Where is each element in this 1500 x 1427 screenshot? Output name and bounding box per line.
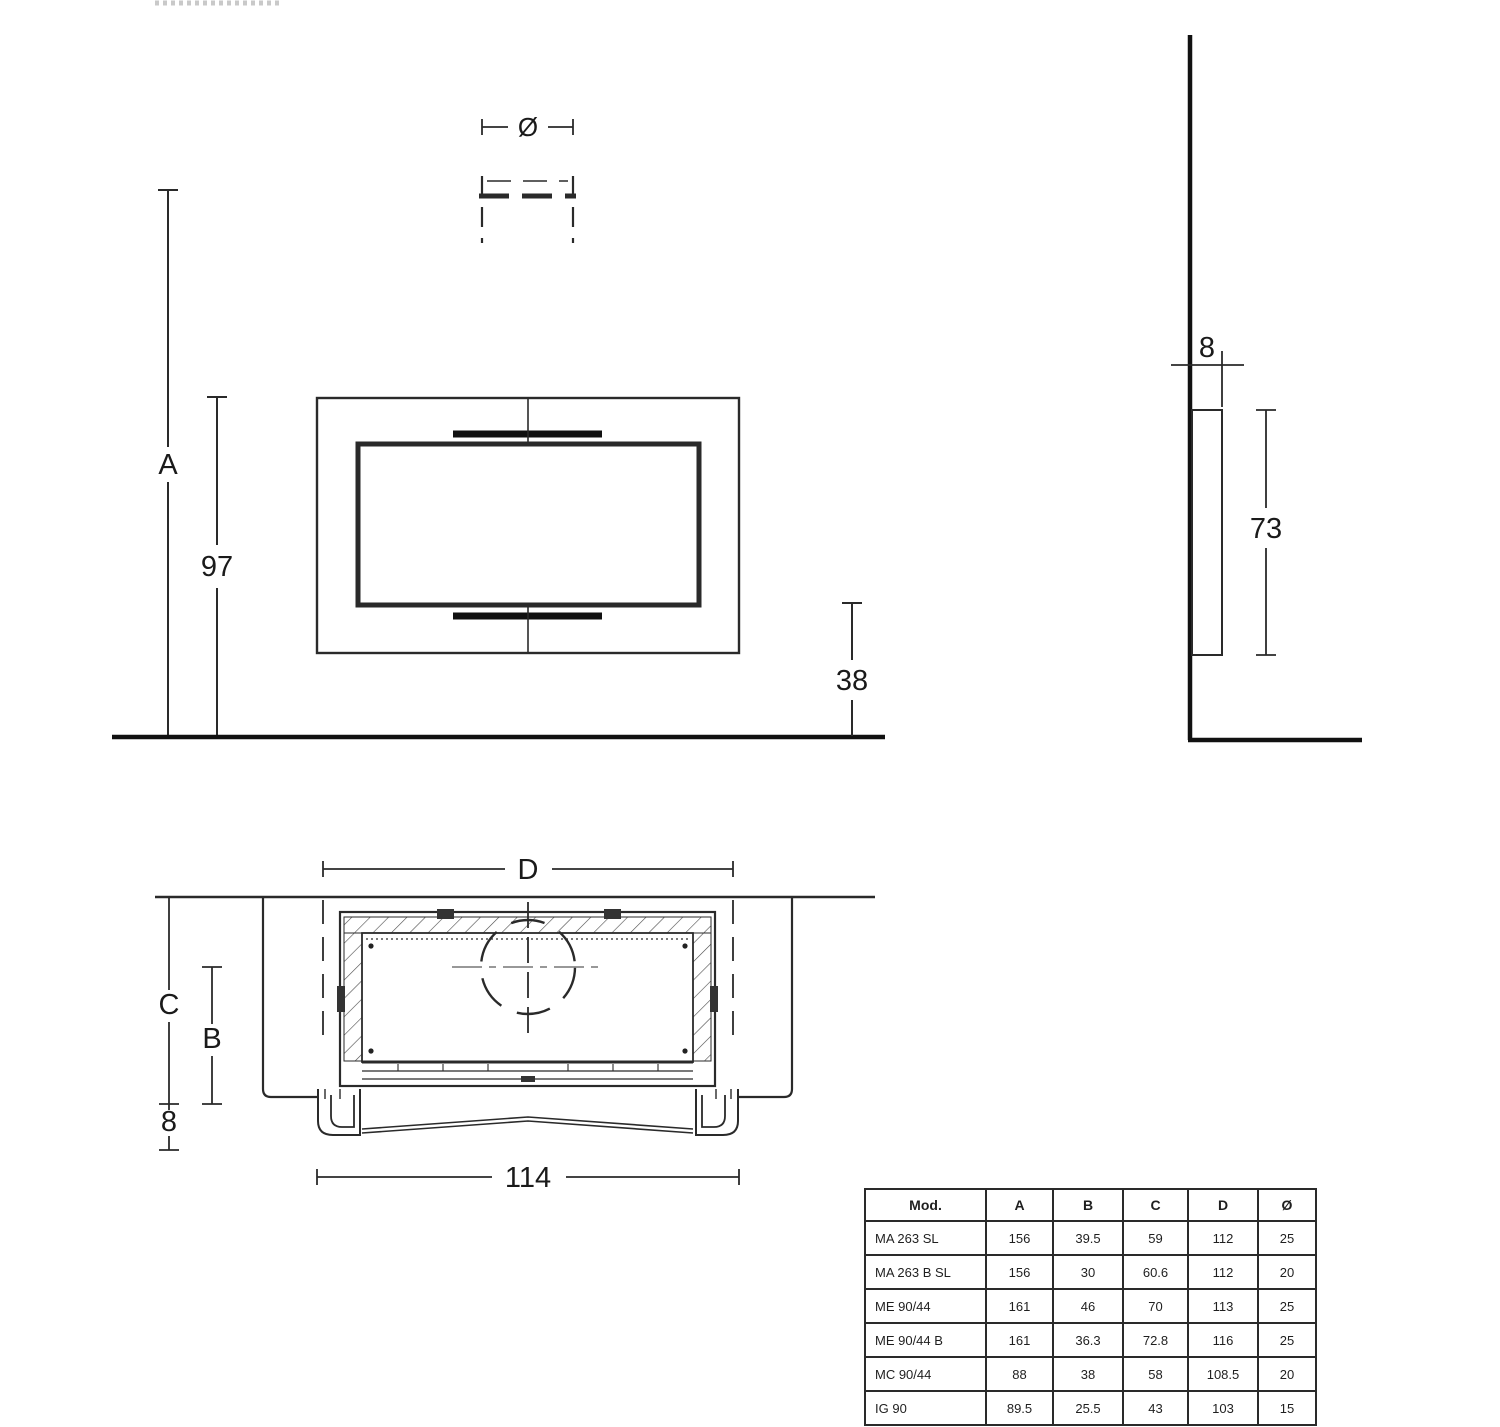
clip-top-left: [437, 909, 454, 919]
bracket-right: [696, 1089, 738, 1135]
dim-8-plan-label: 8: [161, 1106, 177, 1138]
cell-model: IG 90: [865, 1391, 986, 1425]
cell-c: 72.8: [1123, 1323, 1188, 1357]
plan-insulation-left: [344, 933, 362, 1061]
cell-b: 30: [1053, 1255, 1123, 1289]
cell-a: 161: [986, 1323, 1053, 1357]
dim-flue-diameter: Ø: [482, 112, 573, 142]
dim-73-label: 73: [1250, 513, 1282, 545]
cell-b: 46: [1053, 1289, 1123, 1323]
cell-d: 112: [1188, 1221, 1258, 1255]
cell-d: 116: [1188, 1323, 1258, 1357]
screw-dot: [368, 943, 373, 948]
dim-97: 97: [201, 397, 233, 736]
header-d: D: [1188, 1189, 1258, 1221]
dim-b-label: B: [202, 1023, 221, 1055]
header-diameter: Ø: [1258, 1189, 1316, 1221]
cell-model: MA 263 B SL: [865, 1255, 986, 1289]
cell-c: 70: [1123, 1289, 1188, 1323]
front-curve-inner: [362, 1121, 693, 1133]
recess-left-wall: [263, 898, 318, 1097]
cell-d: 113: [1188, 1289, 1258, 1323]
header-c: C: [1123, 1189, 1188, 1221]
clip-side-right: [710, 986, 718, 1012]
dim-depth-c: C: [159, 897, 180, 1104]
screw-dot: [368, 1048, 373, 1053]
dim-niche-width-d: D: [323, 854, 733, 886]
cell-d: 103: [1188, 1391, 1258, 1425]
table-row: MA 263 SL 156 39.5 59 112 25: [865, 1221, 1316, 1255]
cell-b: 36.3: [1053, 1323, 1123, 1357]
cell-b: 25.5: [1053, 1391, 1123, 1425]
dim-73: 73: [1250, 410, 1282, 655]
dim-38-label: 38: [836, 665, 868, 697]
table-row: ME 90/44 161 46 70 113 25: [865, 1289, 1316, 1323]
screw-dot: [682, 1048, 687, 1053]
cell-model: ME 90/44 B: [865, 1323, 986, 1357]
table-row: MA 263 B SL 156 30 60.6 112 20: [865, 1255, 1316, 1289]
plan-view: D: [155, 854, 875, 1194]
technical-drawing-page: A 97 Ø: [0, 0, 1500, 1427]
cell-model: MC 90/44: [865, 1357, 986, 1391]
cell-b: 39.5: [1053, 1221, 1123, 1255]
header-a: A: [986, 1189, 1053, 1221]
diameter-symbol: Ø: [518, 112, 538, 142]
cell-diameter: 15: [1258, 1391, 1316, 1425]
cell-a: 161: [986, 1289, 1053, 1323]
screw-dot: [682, 943, 687, 948]
header-mod: Mod.: [865, 1189, 986, 1221]
dim-114-label: 114: [505, 1162, 551, 1194]
dim-97-label: 97: [201, 551, 233, 583]
cell-a: 89.5: [986, 1391, 1053, 1425]
cell-d: 112: [1188, 1255, 1258, 1289]
dimensions-table: Mod. A B C D Ø MA 263 SL 156 39.5 59 112…: [864, 1188, 1317, 1426]
plan-insulation-right: [693, 933, 711, 1061]
table-row: MC 90/44 88 38 58 108.5 20: [865, 1357, 1316, 1391]
side-unit-profile: [1192, 410, 1222, 655]
cell-d: 108.5: [1188, 1357, 1258, 1391]
header-b: B: [1053, 1189, 1123, 1221]
cell-diameter: 25: [1258, 1289, 1316, 1323]
dim-8-side-label: 8: [1199, 332, 1215, 364]
clip-top-right: [604, 909, 621, 919]
table-row: IG 90 89.5 25.5 43 103 15: [865, 1391, 1316, 1425]
front-frame-latch: [521, 1076, 535, 1082]
front-firebox-opening: [358, 444, 699, 605]
front-view: A 97 Ø: [112, 112, 885, 737]
dim-overall-height: A: [158, 190, 178, 736]
front-curve-outer: [362, 1117, 693, 1129]
dim-c-label: C: [159, 989, 180, 1021]
cell-b: 38: [1053, 1357, 1123, 1391]
cell-c: 43: [1123, 1391, 1188, 1425]
cell-diameter: 25: [1258, 1221, 1316, 1255]
dim-38: 38: [836, 603, 868, 736]
cell-a: 156: [986, 1221, 1053, 1255]
flue-pipe-dashed: [479, 176, 576, 243]
cell-model: ME 90/44: [865, 1289, 986, 1323]
cell-c: 59: [1123, 1221, 1188, 1255]
cell-diameter: 25: [1258, 1323, 1316, 1357]
cell-a: 156: [986, 1255, 1053, 1289]
cell-model: MA 263 SL: [865, 1221, 986, 1255]
side-view: 8 73: [1171, 35, 1362, 740]
cell-c: 58: [1123, 1357, 1188, 1391]
cell-c: 60.6: [1123, 1255, 1188, 1289]
recess-right-wall: [737, 898, 792, 1097]
dim-d-label: D: [518, 854, 539, 886]
dim-unit-width-114: 114: [317, 1162, 739, 1194]
cell-a: 88: [986, 1357, 1053, 1391]
dim-a-label: A: [158, 449, 178, 481]
bracket-left: [318, 1089, 360, 1135]
cell-diameter: 20: [1258, 1357, 1316, 1391]
dim-depth-8: 8: [1171, 332, 1244, 407]
cell-diameter: 20: [1258, 1255, 1316, 1289]
dim-protrusion-8: 8: [159, 1104, 179, 1150]
dim-depth-b: B: [202, 967, 222, 1104]
clip-side-left: [337, 986, 345, 1012]
table-row: ME 90/44 B 161 36.3 72.8 116 25: [865, 1323, 1316, 1357]
table-header-row: Mod. A B C D Ø: [865, 1189, 1316, 1221]
